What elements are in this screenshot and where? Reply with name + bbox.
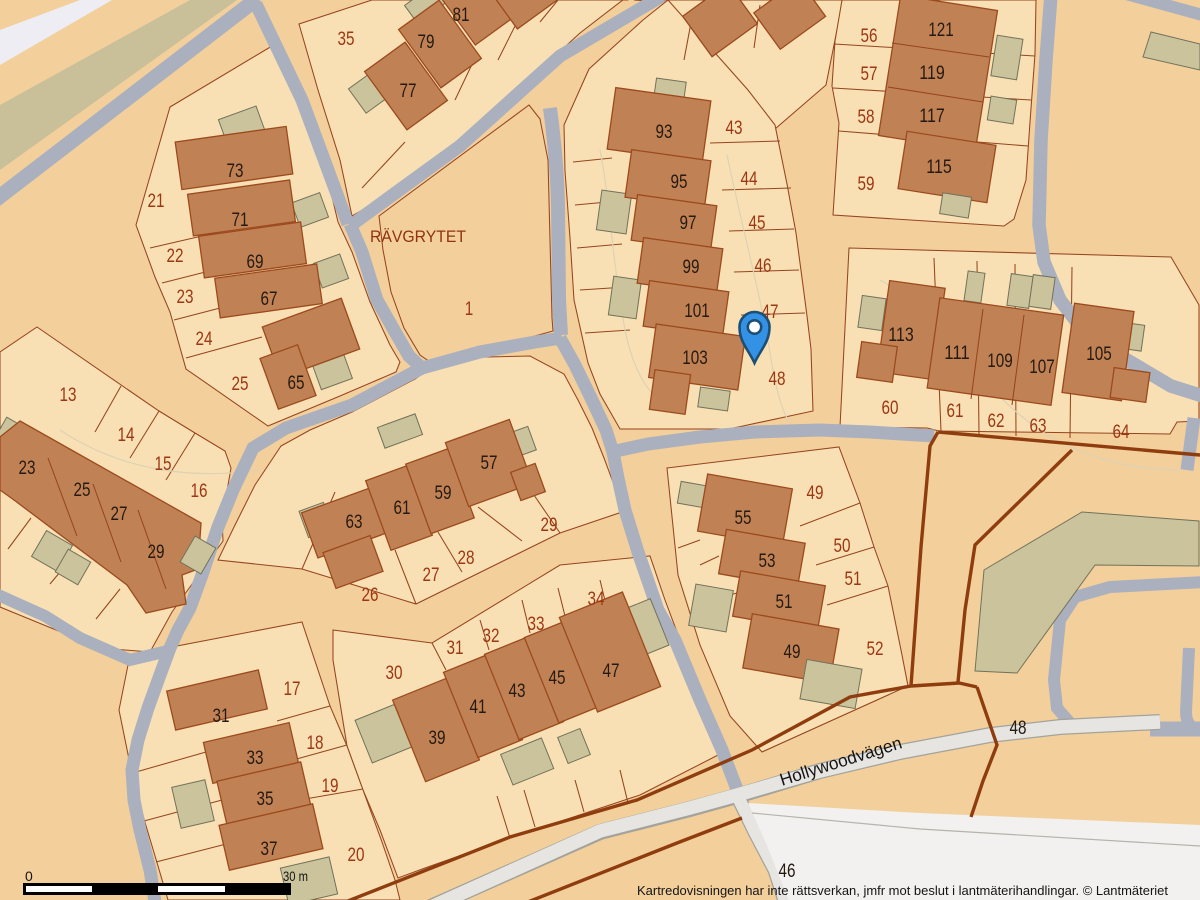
svg-text:39: 39 — [429, 727, 446, 749]
svg-text:31: 31 — [213, 705, 230, 727]
svg-text:103: 103 — [682, 347, 708, 369]
svg-text:79: 79 — [418, 31, 435, 53]
svg-text:33: 33 — [247, 747, 264, 769]
svg-text:31: 31 — [447, 637, 464, 659]
svg-text:99: 99 — [683, 256, 700, 278]
svg-text:121: 121 — [928, 19, 954, 41]
svg-text:1: 1 — [465, 298, 474, 320]
svg-text:63: 63 — [1030, 415, 1047, 437]
svg-text:111: 111 — [944, 342, 970, 364]
svg-text:30 m: 30 m — [283, 868, 308, 884]
svg-text:51: 51 — [845, 568, 862, 590]
svg-text:62: 62 — [988, 410, 1005, 432]
svg-text:45: 45 — [749, 212, 766, 234]
svg-text:16: 16 — [191, 480, 208, 502]
svg-text:52: 52 — [867, 638, 884, 660]
svg-text:18: 18 — [307, 732, 324, 754]
svg-text:43: 43 — [726, 117, 743, 139]
svg-text:95: 95 — [671, 171, 688, 193]
svg-text:77: 77 — [400, 80, 417, 102]
svg-text:28: 28 — [458, 547, 475, 569]
svg-text:119: 119 — [919, 62, 945, 84]
svg-text:64: 64 — [1113, 421, 1130, 443]
svg-text:29: 29 — [541, 514, 558, 536]
svg-text:21: 21 — [148, 190, 165, 212]
svg-text:55: 55 — [735, 507, 752, 529]
svg-text:107: 107 — [1029, 356, 1055, 378]
svg-text:97: 97 — [680, 212, 697, 234]
svg-text:23: 23 — [177, 286, 194, 308]
svg-text:45: 45 — [549, 667, 566, 689]
svg-text:48: 48 — [769, 368, 786, 390]
svg-text:19: 19 — [322, 775, 339, 797]
svg-text:17: 17 — [284, 678, 301, 700]
svg-text:49: 49 — [807, 482, 824, 504]
svg-text:73: 73 — [227, 160, 244, 182]
svg-text:24: 24 — [196, 328, 213, 350]
svg-text:43: 43 — [509, 680, 526, 702]
svg-text:13: 13 — [60, 384, 77, 406]
svg-text:58: 58 — [858, 106, 875, 128]
svg-text:47: 47 — [603, 660, 620, 682]
svg-text:22: 22 — [167, 245, 184, 267]
svg-text:69: 69 — [247, 251, 264, 273]
svg-text:57: 57 — [861, 63, 878, 85]
svg-text:65: 65 — [288, 372, 305, 394]
svg-text:109: 109 — [987, 350, 1013, 372]
svg-text:46: 46 — [755, 255, 772, 277]
svg-text:57: 57 — [481, 452, 498, 474]
svg-text:35: 35 — [338, 28, 355, 50]
svg-text:RÄVGRYTET: RÄVGRYTET — [370, 228, 466, 246]
svg-text:34: 34 — [588, 588, 605, 610]
svg-text:59: 59 — [858, 173, 875, 195]
svg-text:35: 35 — [257, 788, 274, 810]
svg-text:29: 29 — [148, 541, 165, 563]
svg-text:26: 26 — [362, 584, 379, 606]
svg-text:50: 50 — [834, 535, 851, 557]
svg-text:46: 46 — [779, 861, 796, 882]
svg-text:56: 56 — [861, 25, 878, 47]
svg-text:37: 37 — [261, 838, 278, 860]
svg-text:105: 105 — [1086, 343, 1112, 365]
svg-text:48: 48 — [1010, 718, 1027, 739]
svg-text:14: 14 — [118, 424, 135, 446]
svg-text:113: 113 — [888, 324, 914, 346]
svg-text:15: 15 — [155, 453, 172, 475]
svg-text:27: 27 — [111, 503, 128, 525]
svg-text:Kartredovisningen har inte rät: Kartredovisningen har inte rättsverkan, … — [637, 883, 1168, 898]
svg-text:101: 101 — [684, 300, 710, 322]
svg-text:20: 20 — [348, 844, 365, 866]
svg-text:71: 71 — [232, 209, 249, 231]
svg-text:32: 32 — [483, 625, 500, 647]
svg-text:51: 51 — [776, 591, 793, 613]
svg-text:115: 115 — [926, 156, 952, 178]
svg-text:61: 61 — [394, 497, 411, 519]
svg-text:63: 63 — [346, 511, 363, 533]
svg-text:61: 61 — [947, 400, 964, 422]
svg-text:93: 93 — [656, 121, 673, 143]
svg-text:41: 41 — [470, 696, 487, 718]
svg-text:33: 33 — [528, 613, 545, 635]
svg-text:67: 67 — [261, 288, 278, 310]
svg-text:117: 117 — [919, 105, 945, 127]
svg-text:25: 25 — [74, 479, 91, 501]
svg-text:59: 59 — [435, 482, 452, 504]
svg-text:44: 44 — [741, 168, 758, 190]
svg-text:60: 60 — [882, 397, 899, 419]
svg-text:81: 81 — [453, 4, 470, 26]
svg-text:25: 25 — [232, 373, 249, 395]
svg-text:23: 23 — [19, 457, 36, 479]
svg-text:0: 0 — [25, 868, 33, 884]
svg-text:30: 30 — [386, 662, 403, 684]
svg-text:49: 49 — [784, 641, 801, 663]
svg-text:27: 27 — [423, 564, 440, 586]
svg-text:53: 53 — [759, 550, 776, 572]
